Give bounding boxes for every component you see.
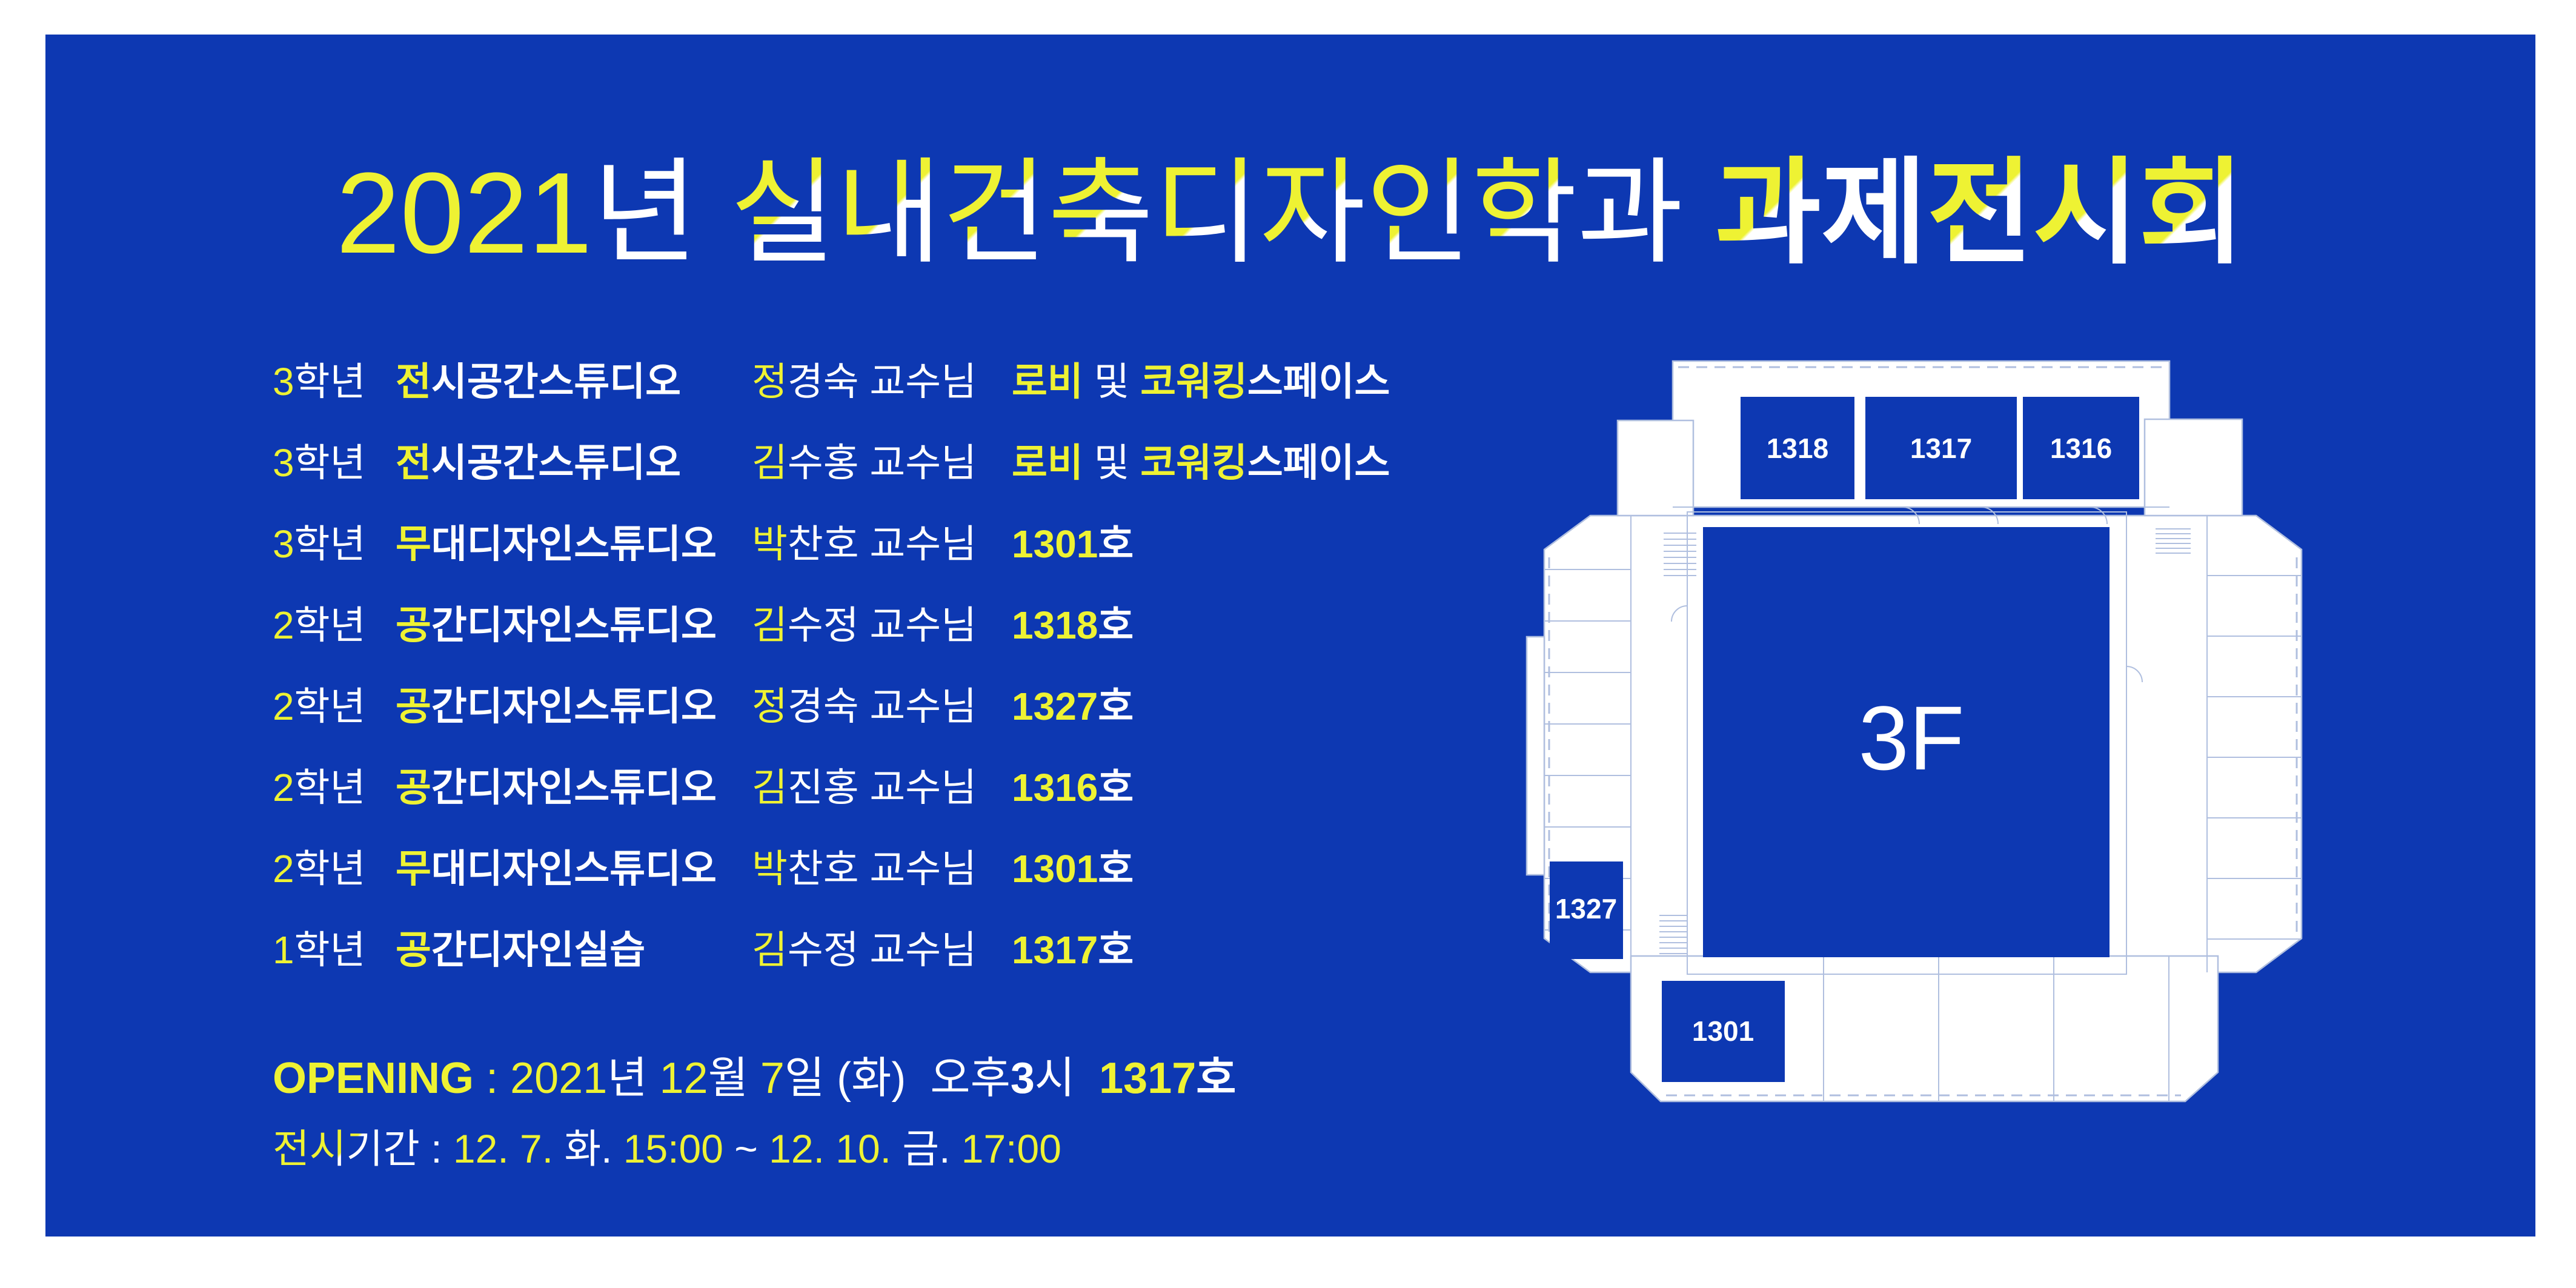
text-segment: 내 bbox=[836, 149, 942, 277]
text-segment: 제 bbox=[1821, 149, 1927, 277]
grade-cell: 3학년 bbox=[273, 503, 365, 585]
text-segment: 김 bbox=[752, 766, 788, 809]
poster-canvas: 2021년 실내건축디자인학과 과제전시회 3학년전시공간스튜디오정경숙 교수님… bbox=[45, 35, 2535, 1237]
text-segment: 박 bbox=[752, 847, 788, 891]
text-segment: 금. bbox=[902, 1126, 961, 1171]
grade-cell: 3학년 bbox=[273, 422, 365, 503]
text-segment: 무 bbox=[396, 847, 431, 891]
text-segment: 년 bbox=[607, 1054, 659, 1103]
text-segment: 정 bbox=[752, 360, 788, 403]
text-segment: 학년 bbox=[294, 441, 366, 485]
text-segment: 전 bbox=[396, 441, 431, 485]
professor-cell: 박찬호 교수님 bbox=[752, 503, 977, 585]
text-segment: 년 bbox=[592, 149, 698, 277]
text-segment: 호 bbox=[1098, 847, 1134, 891]
text-segment: 1301 bbox=[1012, 522, 1098, 566]
professor-cell: 김수정 교수님 bbox=[752, 585, 977, 666]
text-segment: 1301 bbox=[1012, 847, 1098, 891]
text-segment: 2021 bbox=[336, 149, 593, 277]
text-segment: 시공간스튜디오 bbox=[431, 360, 681, 403]
text-segment: 2 bbox=[273, 603, 294, 647]
text-segment: 코워킹 bbox=[1140, 441, 1247, 485]
text-segment: 15:00 bbox=[623, 1126, 735, 1171]
text-segment: 경숙 교수님 bbox=[788, 685, 977, 728]
text-segment: 공 bbox=[396, 766, 431, 809]
professor-cell: 정경숙 교수님 bbox=[752, 341, 977, 422]
floor-plan: 1318 1317 1316 1327 1301 3F bbox=[1515, 291, 2363, 1139]
text-segment: 화. bbox=[564, 1126, 623, 1171]
studio-cell: 공간디자인스튜디오 bbox=[396, 666, 717, 747]
text-segment: 실 bbox=[730, 149, 836, 277]
text-segment: 공 bbox=[396, 685, 431, 728]
text-segment: 대디자인스튜디오 bbox=[431, 522, 717, 566]
professor-cell: 김수홍 교수님 bbox=[752, 422, 977, 503]
text-segment: 1327 bbox=[1012, 685, 1098, 728]
text-segment: 김 bbox=[752, 441, 788, 485]
text-segment: 1317 bbox=[1099, 1054, 1196, 1103]
text-segment: 간디자인스튜디오 bbox=[431, 766, 717, 809]
studio-cell: 전시공간스튜디오 bbox=[396, 422, 681, 503]
studio-cell: 전시공간스튜디오 bbox=[396, 341, 681, 422]
text-segment: 과 bbox=[1715, 149, 1821, 277]
text-segment: : bbox=[420, 1126, 453, 1171]
room-label-1318: 1318 bbox=[1767, 433, 1828, 464]
location-cell: 로비 및 코워킹스페이스 bbox=[1012, 341, 1390, 422]
studio-cell: 공간디자인스튜디오 bbox=[396, 585, 717, 666]
text-segment: 학년 bbox=[294, 847, 366, 891]
text-segment: 시 bbox=[2033, 149, 2139, 277]
text-segment: 수홍 교수님 bbox=[788, 441, 977, 485]
location-cell: 로비 및 코워킹스페이스 bbox=[1012, 422, 1390, 503]
text-segment bbox=[698, 149, 730, 277]
location-cell: 1301호 bbox=[1012, 503, 1134, 585]
text-segment: : bbox=[474, 1054, 510, 1103]
room-label-1301: 1301 bbox=[1692, 1015, 1754, 1047]
text-segment: 17:00 bbox=[961, 1126, 1061, 1171]
text-segment: 1 bbox=[273, 928, 294, 972]
text-segment: 전 bbox=[396, 360, 431, 403]
text-segment: 자 bbox=[1260, 149, 1366, 277]
professor-cell: 정경숙 교수님 bbox=[752, 666, 977, 747]
text-segment: 호 bbox=[1098, 928, 1134, 972]
text-segment: 전시기간 bbox=[273, 1126, 420, 1171]
text-segment: 전 bbox=[1927, 149, 2033, 277]
text-segment: 대디자인스튜디오 bbox=[431, 847, 717, 891]
professor-cell: 박찬호 교수님 bbox=[752, 828, 977, 909]
studio-cell: 공간디자인실습 bbox=[396, 909, 645, 991]
text-segment: 12 bbox=[660, 1054, 708, 1103]
text-segment: 수정 교수님 bbox=[788, 928, 977, 972]
text-segment: 12. 7. bbox=[453, 1126, 564, 1171]
text-segment: 수정 교수님 bbox=[788, 603, 977, 647]
text-segment: 2021 bbox=[510, 1054, 607, 1103]
text-segment: 공 bbox=[396, 603, 431, 647]
text-segment: 찬호 교수님 bbox=[788, 522, 977, 566]
text-segment: 김 bbox=[752, 603, 788, 647]
studio-cell: 공간디자인스튜디오 bbox=[396, 747, 717, 828]
text-segment: 호 bbox=[1098, 522, 1134, 566]
text-segment: 3 bbox=[273, 360, 294, 403]
text-segment: 12. 10. bbox=[769, 1126, 902, 1171]
text-segment: 스페이스 bbox=[1247, 360, 1390, 403]
text-segment: 2 bbox=[273, 847, 294, 891]
text-segment: 회 bbox=[2139, 149, 2245, 277]
text-segment: 정 bbox=[752, 685, 788, 728]
text-segment: 1318 bbox=[1012, 603, 1098, 647]
text-segment: 디 bbox=[1154, 149, 1260, 277]
text-segment: 학년 bbox=[294, 522, 366, 566]
text-segment bbox=[1683, 149, 1715, 277]
text-segment: 축 bbox=[1048, 149, 1154, 277]
text-segment: 공 bbox=[396, 928, 431, 972]
text-segment: 간디자인실습 bbox=[431, 928, 645, 972]
text-segment: 코워킹 bbox=[1140, 360, 1247, 403]
text-segment: 시 bbox=[1035, 1054, 1099, 1103]
text-segment: 간디자인스튜디오 bbox=[431, 603, 717, 647]
text-segment: 건 bbox=[942, 149, 1048, 277]
grade-cell: 1학년 bbox=[273, 909, 365, 991]
room-label-1317: 1317 bbox=[1910, 433, 1972, 464]
text-segment: 학년 bbox=[294, 766, 366, 809]
text-segment: 시공간스튜디오 bbox=[431, 441, 681, 485]
text-segment: 김 bbox=[752, 928, 788, 972]
text-segment: 학년 bbox=[294, 360, 366, 403]
text-segment: 학 bbox=[1472, 149, 1578, 277]
text-segment: 2 bbox=[273, 766, 294, 809]
grade-cell: 2학년 bbox=[273, 666, 365, 747]
exhibition-period-line: 전시기간 : 12. 7. 화. 15:00 ~ 12. 10. 금. 17:0… bbox=[273, 1115, 1061, 1182]
text-segment: 및 bbox=[1083, 441, 1140, 485]
professor-cell: 김진홍 교수님 bbox=[752, 747, 977, 828]
west-sliver bbox=[1527, 637, 1544, 875]
grade-cell: 2학년 bbox=[273, 747, 365, 828]
text-segment: 및 bbox=[1083, 360, 1140, 403]
location-cell: 1301호 bbox=[1012, 828, 1134, 909]
text-segment: 과 bbox=[1578, 149, 1684, 277]
text-segment: 경숙 교수님 bbox=[788, 360, 977, 403]
text-segment: 월 bbox=[708, 1054, 760, 1103]
text-segment: 학년 bbox=[294, 685, 366, 728]
text-segment: 2 bbox=[273, 685, 294, 728]
text-segment: 학년 bbox=[294, 928, 366, 972]
studio-cell: 무대디자인스튜디오 bbox=[396, 503, 717, 585]
location-cell: 1316호 bbox=[1012, 747, 1134, 828]
grade-cell: 2학년 bbox=[273, 828, 365, 909]
text-segment: 로비 bbox=[1012, 360, 1083, 403]
text-segment: 스페이스 bbox=[1247, 441, 1390, 485]
text-segment: 간디자인스튜디오 bbox=[431, 685, 717, 728]
text-segment: 3 bbox=[1011, 1054, 1035, 1103]
text-segment: OPENING bbox=[273, 1054, 474, 1103]
text-segment: 호 bbox=[1098, 685, 1134, 728]
location-cell: 1318호 bbox=[1012, 585, 1134, 666]
text-segment: 인 bbox=[1366, 149, 1472, 277]
text-segment: 진홍 교수님 bbox=[788, 766, 977, 809]
location-cell: 1317호 bbox=[1012, 909, 1134, 991]
text-segment: 박 bbox=[752, 522, 788, 566]
text-segment: 학년 bbox=[294, 603, 366, 647]
text-segment: 호 bbox=[1098, 603, 1134, 647]
opening-info-line: OPENING : 2021년 12월 7일 (화) 오후3시 1317호 bbox=[273, 1045, 1237, 1112]
text-segment: 일 (화) bbox=[785, 1054, 906, 1103]
text-segment: 7 bbox=[760, 1054, 785, 1103]
text-segment: ~ bbox=[734, 1126, 769, 1171]
studio-cell: 무대디자인스튜디오 bbox=[396, 828, 717, 909]
room-label-1327: 1327 bbox=[1555, 893, 1617, 925]
floor-label: 3F bbox=[1858, 687, 1964, 789]
professor-cell: 김수정 교수님 bbox=[752, 909, 977, 991]
text-segment: 무 bbox=[396, 522, 431, 566]
northwest-annex bbox=[1618, 420, 1693, 516]
text-segment: 호 bbox=[1098, 766, 1134, 809]
text-segment: 오후 bbox=[906, 1054, 1011, 1103]
text-segment: 호 bbox=[1196, 1054, 1236, 1103]
text-segment: 찬호 교수님 bbox=[788, 847, 977, 891]
poster-title: 2021년 실내건축디자인학과 과제전시회 bbox=[45, 125, 2535, 301]
grade-cell: 3학년 bbox=[273, 341, 365, 422]
text-segment: 1317 bbox=[1012, 928, 1098, 972]
text-segment: 3 bbox=[273, 522, 294, 566]
text-segment: 로비 bbox=[1012, 441, 1083, 485]
room-label-1316: 1316 bbox=[2050, 433, 2112, 464]
text-segment: 1316 bbox=[1012, 766, 1098, 809]
location-cell: 1327호 bbox=[1012, 666, 1134, 747]
northeast-annex bbox=[2145, 419, 2242, 516]
grade-cell: 2학년 bbox=[273, 585, 365, 666]
text-segment: 3 bbox=[273, 441, 294, 485]
